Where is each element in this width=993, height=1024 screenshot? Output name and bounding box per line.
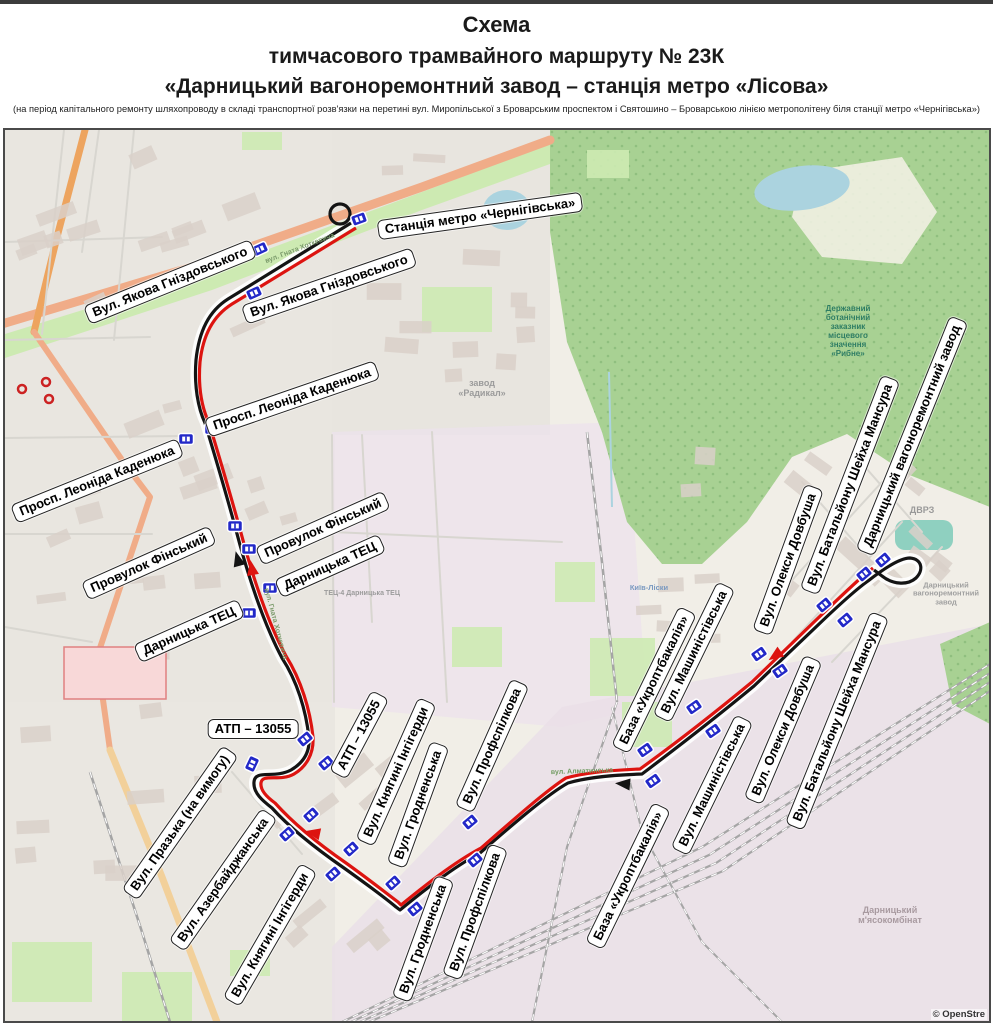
page-note: (на період капітального ремонту шляхопро… xyxy=(0,104,993,114)
tram-stop-icon xyxy=(263,583,278,594)
tram-stop-icon xyxy=(179,434,194,445)
header: Схема тимчасового трамвайного маршруту №… xyxy=(0,4,993,128)
tram-stop-icon xyxy=(242,608,257,619)
tram-stop-icon xyxy=(242,544,257,555)
map: завод«Радикал»Державнийботанічнийзаказни… xyxy=(3,128,991,1023)
page-subtitle-route: тимчасового трамвайного маршруту № 23К xyxy=(0,45,993,69)
page-subtitle-endpoints: «Дарницький вагоноремонтний завод – стан… xyxy=(0,75,993,99)
map-canvas xyxy=(5,130,989,1021)
route-scheme-poster: Схема тимчасового трамвайного маршруту №… xyxy=(0,0,993,1024)
page-title: Схема xyxy=(0,12,993,38)
tram-stop-icon xyxy=(228,521,243,532)
osm-attribution: © OpenStre xyxy=(931,1009,987,1020)
tram-stop-icon xyxy=(205,424,220,435)
